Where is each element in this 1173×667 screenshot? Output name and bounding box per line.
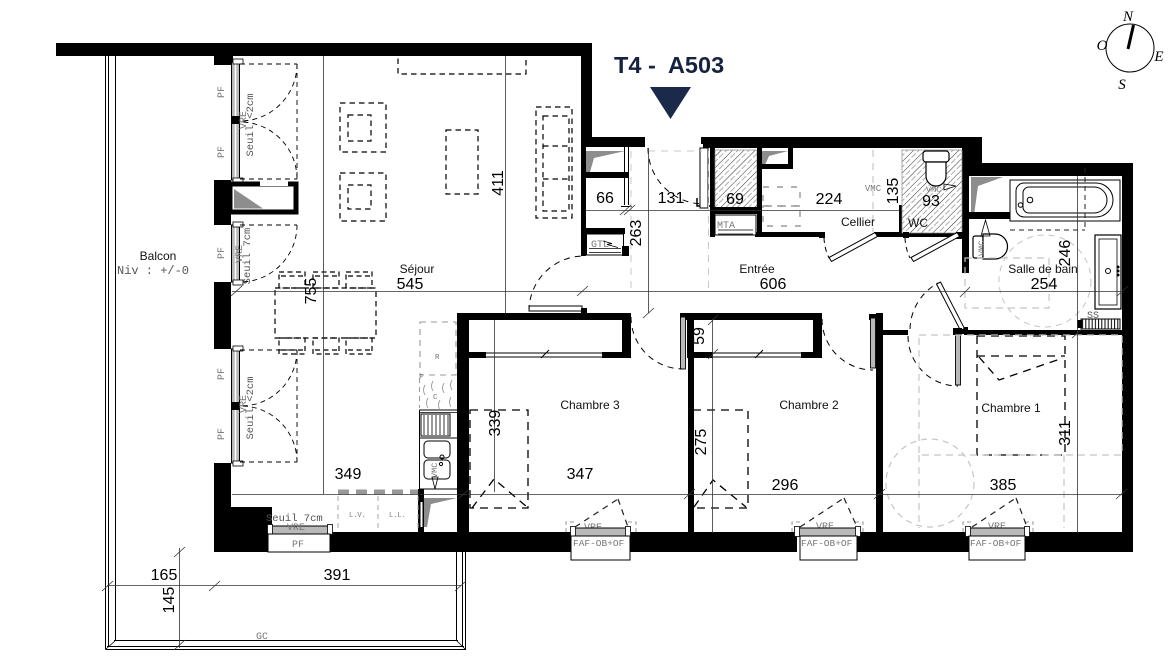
- svg-text:246: 246: [1057, 240, 1074, 267]
- svg-text:PF: PF: [292, 540, 304, 551]
- svg-text:S: S: [1118, 77, 1126, 93]
- svg-text:411: 411: [490, 170, 507, 196]
- svg-text:VRE: VRE: [287, 523, 305, 534]
- svg-text:69: 69: [726, 191, 744, 208]
- svg-text:275: 275: [693, 429, 710, 456]
- svg-text:PF: PF: [217, 146, 228, 158]
- svg-text:T4 - A503: T4 - A503: [614, 52, 724, 78]
- svg-text:FAF-OB+OF: FAF-OB+OF: [801, 538, 853, 549]
- svg-text:VMC: VMC: [430, 463, 440, 478]
- svg-text:165: 165: [151, 567, 178, 584]
- svg-text:FAF-OB+OF: FAF-OB+OF: [970, 538, 1022, 549]
- svg-text:WC: WC: [908, 216, 928, 230]
- svg-text:PF: PF: [217, 247, 228, 259]
- svg-text:N: N: [1122, 9, 1134, 25]
- svg-text:391: 391: [324, 567, 351, 584]
- svg-text:66: 66: [596, 190, 614, 207]
- svg-text:Chambre 3: Chambre 3: [560, 398, 620, 412]
- svg-text:296: 296: [772, 477, 799, 494]
- svg-text:Niv : +/-0: Niv : +/-0: [117, 264, 189, 278]
- svg-text:385: 385: [990, 477, 1017, 494]
- svg-text:755: 755: [303, 278, 320, 305]
- svg-text:339: 339: [487, 410, 504, 437]
- svg-text:O: O: [1097, 38, 1108, 54]
- svg-text:347: 347: [567, 466, 594, 483]
- svg-text:Entrée: Entrée: [739, 262, 775, 276]
- svg-text:PF: PF: [217, 428, 228, 440]
- svg-text:349: 349: [335, 466, 362, 483]
- svg-text:93: 93: [922, 193, 940, 210]
- svg-text:C: C: [433, 394, 438, 402]
- svg-text:Cellier: Cellier: [841, 215, 875, 229]
- svg-text:224: 224: [816, 191, 843, 208]
- svg-text:131: 131: [658, 190, 685, 207]
- svg-text:Chambre 1: Chambre 1: [981, 401, 1041, 415]
- svg-text:Balcon: Balcon: [140, 249, 177, 263]
- svg-text:L.V.: L.V.: [349, 512, 366, 520]
- svg-text:VMC: VMC: [865, 184, 882, 194]
- svg-text:PF: PF: [217, 86, 228, 98]
- svg-text:VMC: VMC: [977, 241, 987, 256]
- svg-text:Seuil 7cm: Seuil 7cm: [242, 228, 254, 285]
- svg-text:254: 254: [1031, 276, 1058, 293]
- svg-text:135: 135: [885, 178, 902, 205]
- svg-text:PF: PF: [217, 368, 228, 380]
- svg-text:Séjour: Séjour: [400, 262, 435, 276]
- svg-text:311: 311: [1057, 420, 1074, 446]
- svg-text:E: E: [1153, 49, 1163, 65]
- svg-text:L.L.: L.L.: [389, 512, 406, 520]
- svg-text:R: R: [435, 354, 440, 362]
- svg-text:Chambre 2: Chambre 2: [779, 398, 839, 412]
- svg-text:263: 263: [628, 220, 645, 247]
- svg-text:606: 606: [760, 276, 787, 293]
- svg-text:GC: GC: [256, 632, 268, 643]
- svg-text:545: 545: [397, 276, 424, 293]
- svg-text:145: 145: [161, 587, 178, 614]
- svg-text:FAF-OB+OF: FAF-OB+OF: [573, 538, 625, 549]
- svg-text:Seuil <2cm: Seuil <2cm: [245, 93, 257, 156]
- svg-text:59: 59: [691, 327, 708, 345]
